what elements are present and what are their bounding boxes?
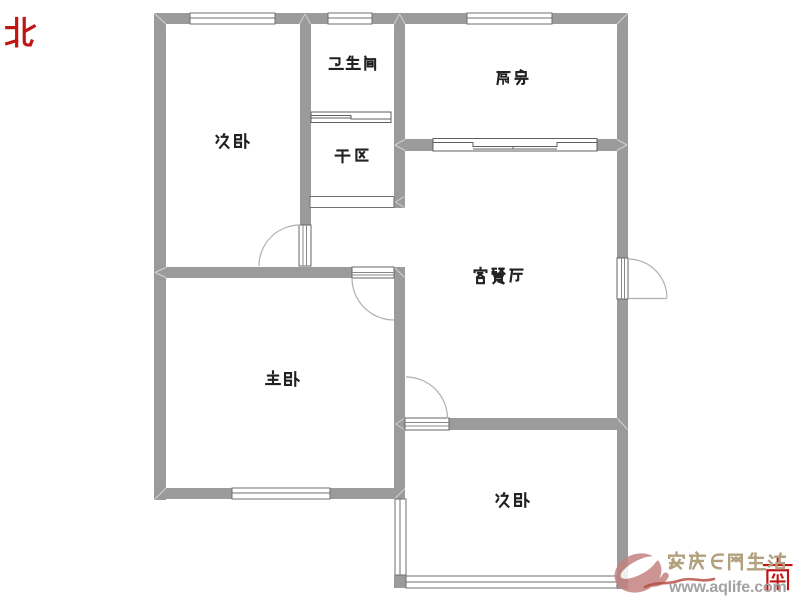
svg-text:www.aqlife.com: www.aqlife.com [668,579,787,596]
